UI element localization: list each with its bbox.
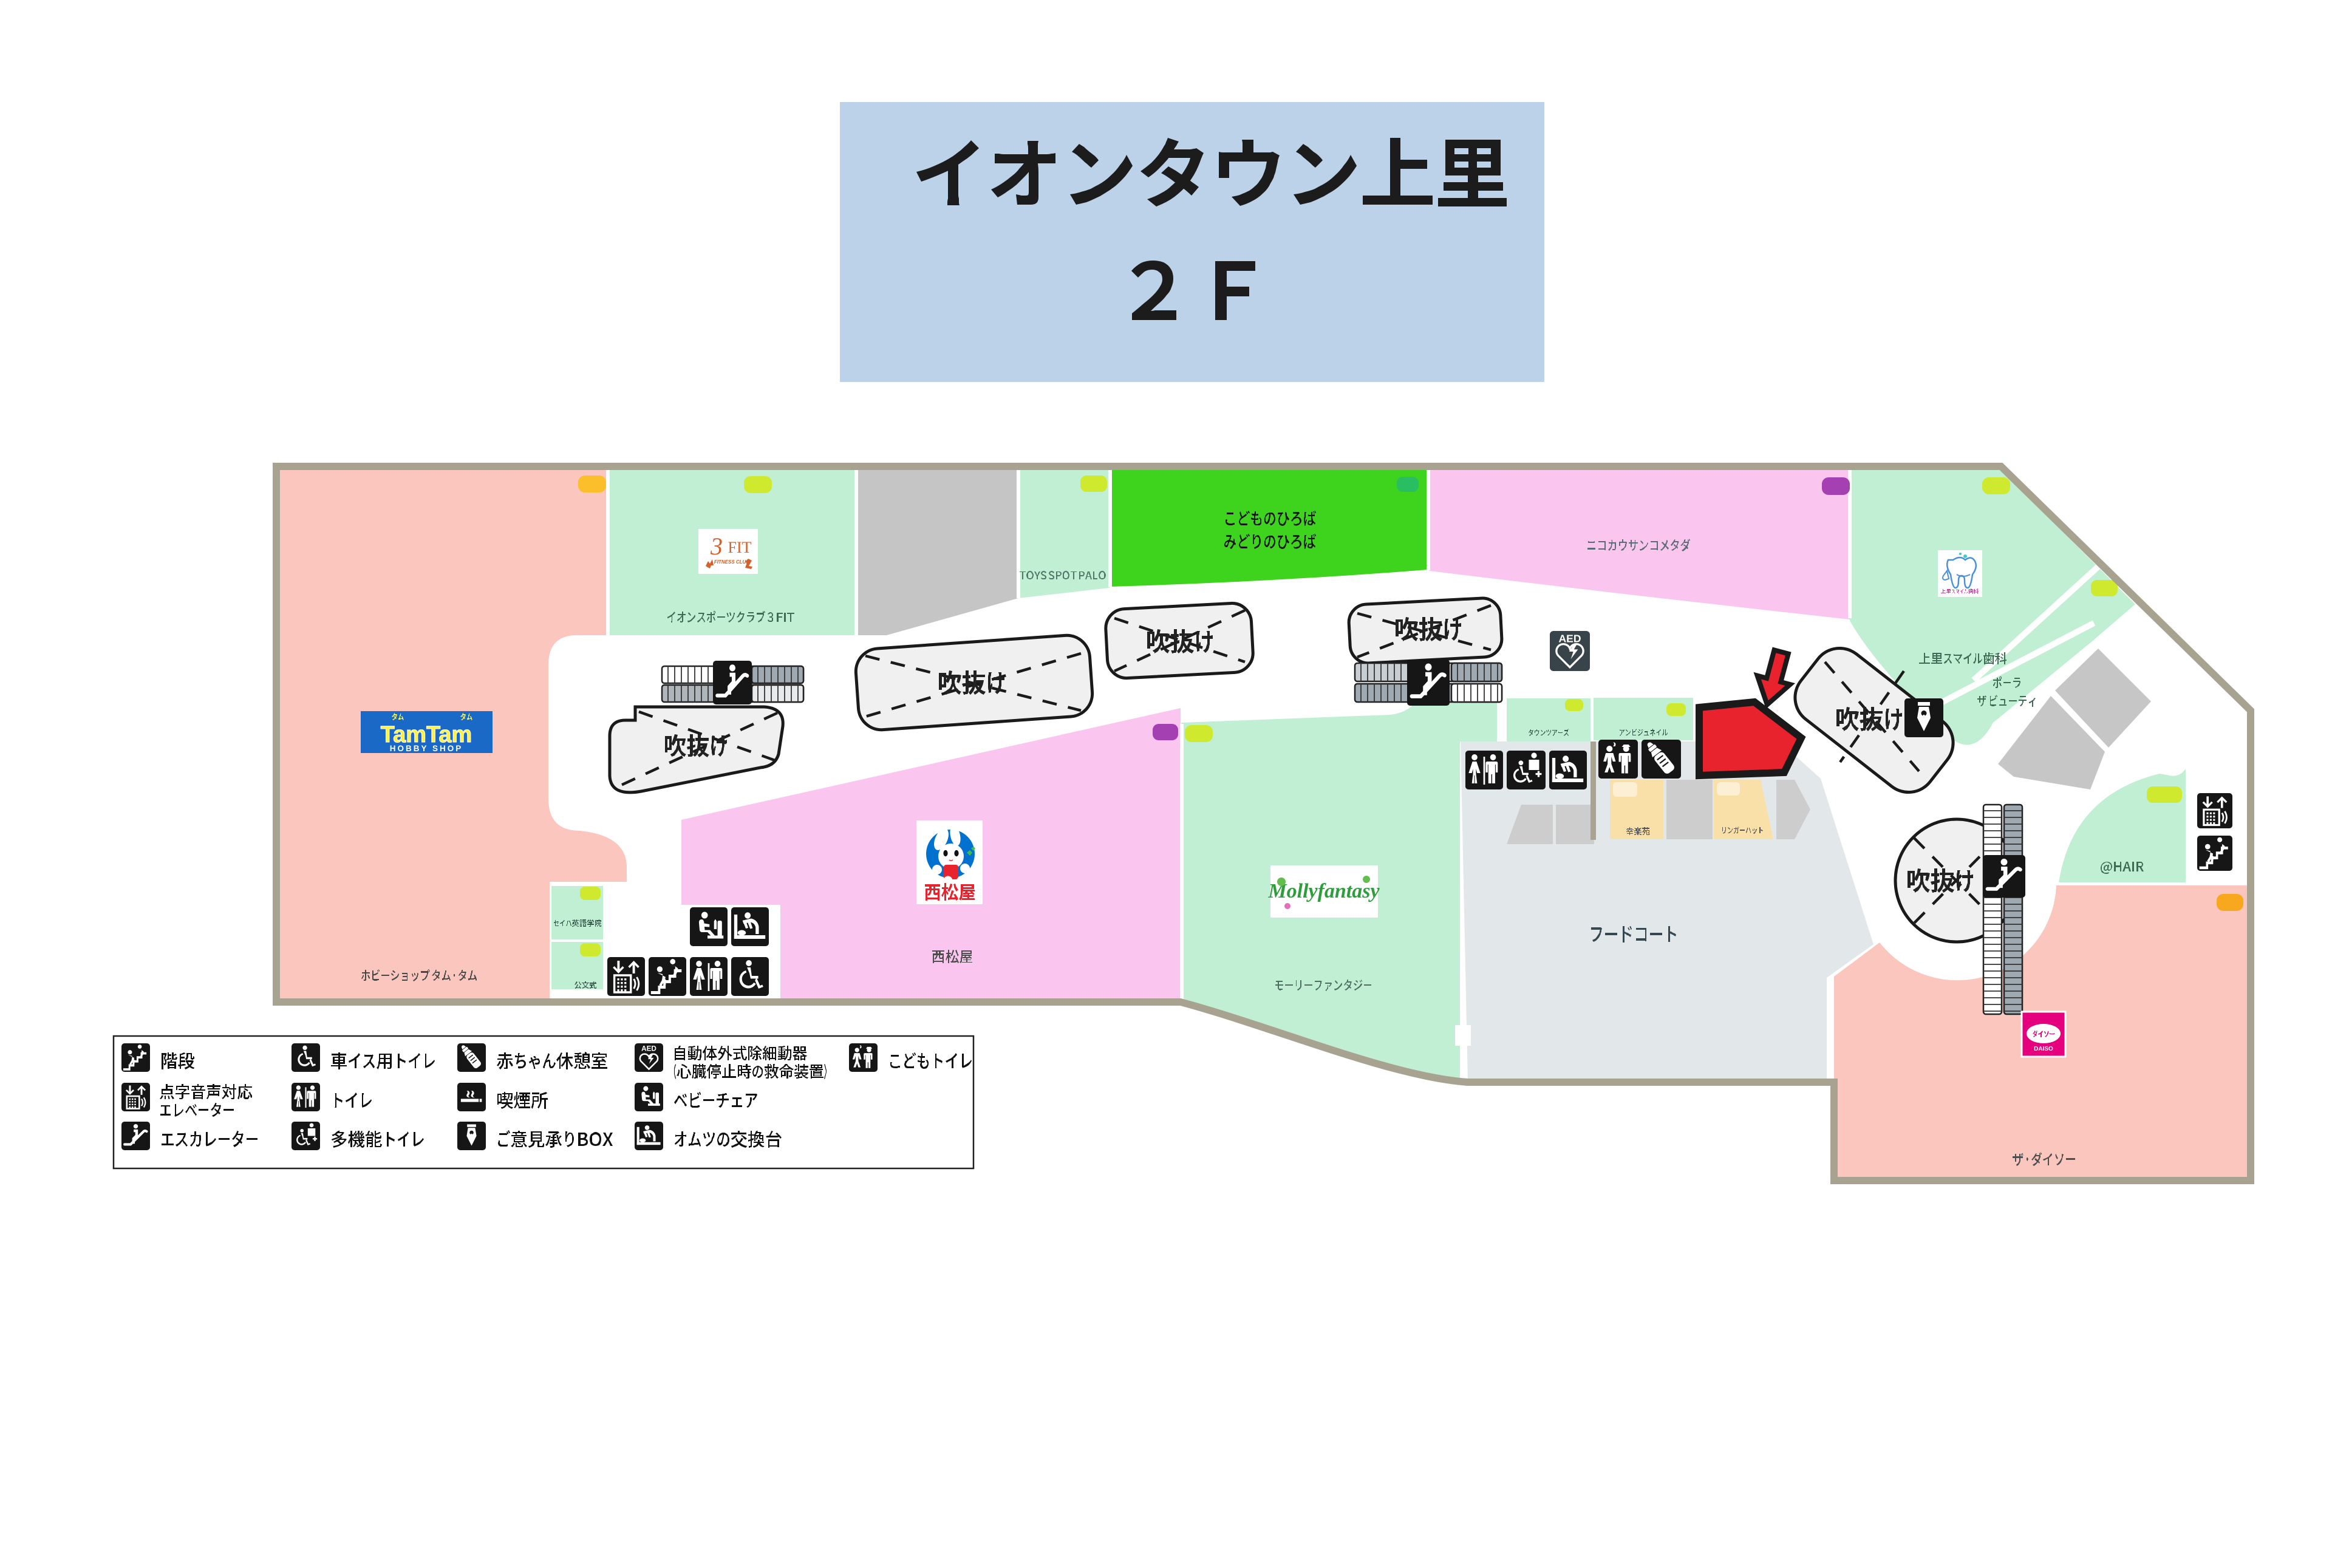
- svg-text:AED: AED: [1559, 633, 1581, 645]
- svg-text:3: 3: [710, 533, 723, 560]
- svg-text:FITNESS CLUB: FITNESS CLUB: [714, 559, 749, 565]
- svg-text:FIT: FIT: [728, 539, 752, 556]
- svg-text:AED: AED: [641, 1045, 656, 1052]
- svg-text:HOBBY SHOP: HOBBY SHOP: [390, 744, 463, 753]
- svg-text:DAISO: DAISO: [2034, 1046, 2053, 1052]
